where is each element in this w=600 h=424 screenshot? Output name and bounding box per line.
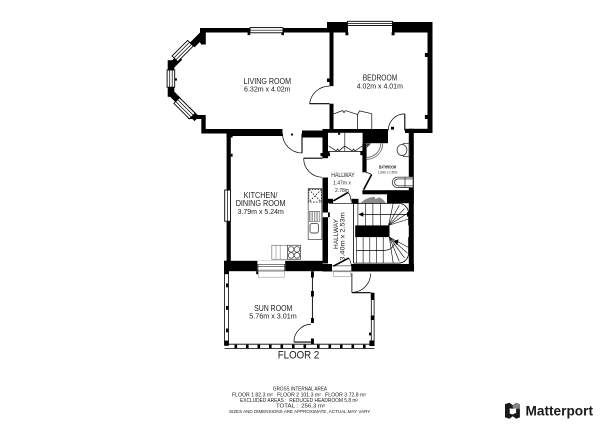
svg-text:1.47m x: 1.47m x xyxy=(333,181,351,187)
svg-text:4.02m x 4.01m: 4.02m x 4.01m xyxy=(357,81,403,90)
svg-text:SIZES AND DIMENSIONS ARE APPRO: SIZES AND DIMENSIONS ARE APPROXIMATE, AC… xyxy=(229,409,371,415)
svg-text:5.76m x 3.01m: 5.76m x 3.01m xyxy=(249,312,296,321)
svg-text:Matterport: Matterport xyxy=(526,402,594,418)
svg-text:3.40m x 2.53m: 3.40m x 2.53m xyxy=(340,212,347,261)
svg-text:HALLWAY: HALLWAY xyxy=(331,172,355,179)
svg-text:2.78m: 2.78m xyxy=(335,188,349,194)
svg-text:3.79m x 5.24m: 3.79m x 5.24m xyxy=(238,207,284,216)
svg-text:6.32m x 4.02m: 6.32m x 4.02m xyxy=(244,84,291,93)
svg-text:TOTAL : 256.3 m²: TOTAL : 256.3 m² xyxy=(276,403,325,409)
svg-text:1.80m x 2.50m: 1.80m x 2.50m xyxy=(378,169,398,174)
svg-text:FLOOR 2: FLOOR 2 xyxy=(278,350,320,362)
